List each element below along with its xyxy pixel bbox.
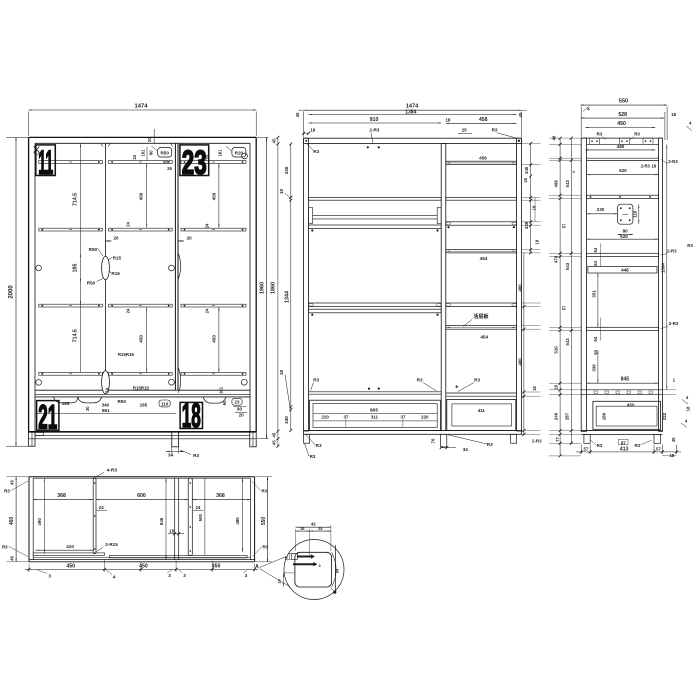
svg-text:24: 24: [204, 308, 209, 313]
svg-text:34: 34: [168, 453, 174, 458]
svg-text:865: 865: [370, 407, 378, 413]
svg-text:714.5: 714.5: [73, 193, 79, 206]
svg-text:161: 161: [140, 149, 145, 157]
svg-text:520: 520: [619, 168, 627, 173]
svg-text:845: 845: [621, 377, 630, 383]
svg-text:480: 480: [518, 284, 523, 292]
svg-text:A: A: [255, 564, 259, 570]
svg-text:24: 24: [104, 387, 109, 392]
svg-text:46: 46: [551, 135, 556, 140]
svg-text:76: 76: [431, 438, 436, 443]
svg-text:24: 24: [204, 223, 209, 228]
svg-text:110: 110: [161, 401, 169, 406]
svg-text:480: 480: [617, 144, 625, 149]
svg-text:25: 25: [462, 128, 467, 133]
svg-text:37: 37: [400, 414, 405, 419]
svg-text:340: 340: [284, 416, 289, 424]
svg-text:600: 600: [137, 493, 146, 499]
svg-text:2-R3: 2-R3: [668, 159, 678, 164]
svg-text:24: 24: [126, 308, 131, 313]
svg-text:3: 3: [245, 573, 248, 578]
svg-text:4: 4: [113, 575, 116, 580]
svg-text:351: 351: [591, 290, 596, 298]
svg-text:18: 18: [531, 205, 536, 210]
svg-text:2-R15: 2-R15: [105, 542, 118, 547]
svg-text:60: 60: [336, 569, 340, 573]
svg-text:23: 23: [235, 400, 240, 405]
svg-text:336: 336: [591, 364, 596, 372]
svg-text:2-R3: 2-R3: [369, 127, 379, 132]
svg-text:450: 450: [617, 121, 626, 127]
svg-text:479: 479: [554, 255, 559, 263]
svg-text:R3: R3: [687, 243, 693, 248]
svg-text:2-R3: 2-R3: [669, 321, 679, 326]
svg-text:45: 45: [295, 112, 300, 117]
svg-text:340: 340: [524, 166, 529, 174]
svg-text:18: 18: [277, 579, 282, 584]
svg-text:90: 90: [237, 407, 242, 412]
svg-text:368: 368: [57, 493, 66, 499]
svg-text:26: 26: [167, 166, 172, 171]
svg-text:180: 180: [601, 412, 606, 420]
svg-text:R3: R3: [4, 489, 10, 494]
svg-text:60: 60: [148, 150, 153, 155]
svg-text:448: 448: [621, 267, 629, 272]
svg-text:165: 165: [140, 403, 148, 408]
svg-text:1474: 1474: [135, 104, 149, 110]
svg-text:543: 543: [565, 262, 570, 270]
svg-text:311: 311: [371, 414, 379, 419]
svg-text:64: 64: [593, 349, 598, 354]
svg-text:543: 543: [565, 338, 570, 346]
svg-text:18: 18: [669, 453, 674, 458]
svg-text:64: 64: [593, 336, 598, 341]
svg-text:18: 18: [182, 397, 201, 435]
svg-text:R3: R3: [492, 127, 498, 132]
svg-text:R15: R15: [111, 271, 120, 276]
svg-text:450: 450: [66, 564, 75, 570]
svg-text:240: 240: [554, 412, 559, 420]
svg-text:R3: R3: [316, 443, 322, 448]
svg-text:23: 23: [182, 144, 207, 182]
svg-text:24: 24: [205, 154, 210, 159]
svg-text:57: 57: [656, 446, 661, 451]
svg-text:1960: 1960: [260, 282, 266, 294]
svg-text:454: 454: [480, 256, 488, 261]
svg-text:37: 37: [343, 414, 348, 419]
svg-text:R3: R3: [597, 443, 603, 448]
svg-text:21: 21: [38, 399, 57, 437]
svg-text:499: 499: [554, 180, 559, 188]
svg-text:18: 18: [535, 239, 540, 244]
svg-text:R15R15: R15R15: [133, 386, 150, 391]
svg-text:24: 24: [132, 154, 137, 159]
svg-text:18: 18: [300, 526, 305, 531]
svg-text:24: 24: [318, 526, 323, 531]
svg-text:458: 458: [479, 117, 488, 123]
svg-text:45: 45: [9, 480, 14, 485]
svg-text:450: 450: [211, 192, 216, 200]
svg-text:80: 80: [623, 229, 629, 234]
svg-text:400: 400: [518, 358, 523, 366]
svg-text:2-R3: 2-R3: [641, 163, 651, 168]
svg-text:20: 20: [239, 413, 244, 418]
svg-text:45: 45: [518, 112, 523, 117]
svg-text:232: 232: [662, 412, 667, 420]
svg-text:34: 34: [463, 447, 469, 452]
svg-text:520: 520: [620, 234, 628, 239]
svg-text:550: 550: [619, 99, 628, 105]
svg-text:57: 57: [584, 446, 589, 451]
svg-text:R3: R3: [2, 544, 8, 549]
svg-text:500: 500: [198, 513, 203, 521]
svg-text:714.5: 714.5: [73, 329, 79, 342]
svg-text:510: 510: [554, 346, 559, 354]
svg-text:287: 287: [565, 412, 570, 420]
svg-text:30: 30: [85, 406, 90, 411]
svg-text:340: 340: [102, 403, 110, 408]
svg-text:45: 45: [9, 555, 14, 560]
svg-text:2-R3: 2-R3: [667, 249, 677, 254]
svg-text:R50: R50: [87, 280, 96, 285]
svg-text:45: 45: [272, 432, 277, 437]
svg-text:3: 3: [168, 573, 171, 578]
svg-text:11: 11: [38, 144, 53, 182]
svg-text:528: 528: [618, 112, 627, 118]
svg-text:18: 18: [310, 127, 315, 132]
svg-text:45: 45: [671, 437, 676, 442]
svg-text:20: 20: [187, 235, 193, 240]
svg-text:18: 18: [279, 370, 284, 375]
svg-text:77: 77: [555, 437, 560, 442]
svg-text:活层板: 活层板: [473, 313, 489, 320]
svg-text:R3: R3: [474, 377, 480, 382]
svg-text:R3: R3: [313, 377, 319, 382]
svg-text:2000: 2000: [8, 285, 14, 299]
svg-text:R3: R3: [417, 377, 423, 382]
svg-text:90: 90: [163, 160, 168, 165]
svg-text:57: 57: [562, 305, 567, 310]
svg-text:450: 450: [211, 335, 216, 343]
svg-text:45: 45: [272, 138, 277, 143]
svg-text:24: 24: [99, 505, 104, 510]
svg-text:450: 450: [139, 564, 148, 570]
svg-text:413: 413: [620, 447, 629, 453]
svg-text:910: 910: [370, 117, 379, 123]
svg-text:R15R15: R15R15: [118, 352, 135, 357]
svg-text:368: 368: [216, 493, 225, 499]
svg-text:24: 24: [126, 221, 131, 226]
svg-text:15: 15: [284, 556, 288, 560]
svg-text:1860: 1860: [271, 282, 277, 294]
svg-text:R50: R50: [160, 151, 169, 156]
svg-text:161: 161: [217, 149, 222, 157]
svg-text:18: 18: [445, 117, 450, 122]
svg-text:550: 550: [261, 517, 267, 526]
svg-text:18: 18: [523, 178, 528, 183]
svg-text:3: 3: [48, 574, 51, 579]
svg-text:490: 490: [37, 518, 42, 526]
svg-text:543: 543: [565, 180, 570, 188]
svg-text:411: 411: [478, 408, 486, 413]
svg-text:18: 18: [651, 163, 656, 168]
svg-text:220: 220: [421, 414, 429, 419]
svg-text:R3: R3: [634, 443, 640, 448]
svg-text:450: 450: [212, 564, 221, 570]
svg-text:R3: R3: [262, 544, 268, 549]
svg-text:R3: R3: [261, 489, 267, 494]
svg-text:18: 18: [279, 189, 284, 194]
svg-text:450: 450: [139, 335, 144, 343]
svg-text:R3: R3: [487, 442, 493, 447]
svg-text:42: 42: [311, 521, 316, 526]
svg-text:18: 18: [671, 112, 676, 117]
svg-text:R50: R50: [89, 247, 98, 252]
svg-text:161: 161: [219, 386, 224, 394]
svg-text:410: 410: [66, 544, 74, 549]
svg-text:2-R3: 2-R3: [532, 439, 542, 444]
svg-text:R3: R3: [597, 132, 603, 137]
svg-text:R3: R3: [193, 453, 199, 458]
svg-text:846: 846: [159, 517, 164, 525]
svg-text:861: 861: [102, 408, 110, 413]
svg-text:110: 110: [632, 210, 637, 218]
svg-text:64: 64: [593, 247, 598, 252]
svg-text:R50: R50: [117, 399, 126, 404]
svg-text:45: 45: [272, 440, 277, 445]
svg-text:450: 450: [627, 403, 635, 408]
svg-text:87: 87: [621, 440, 626, 445]
svg-text:454: 454: [480, 334, 488, 339]
svg-text:R3: R3: [310, 454, 316, 459]
svg-text:R15: R15: [113, 256, 122, 261]
svg-text:165: 165: [62, 401, 70, 406]
svg-text:220: 220: [322, 414, 330, 419]
svg-text:R3: R3: [313, 149, 319, 154]
svg-text:1394: 1394: [660, 263, 665, 273]
svg-text:20: 20: [147, 137, 152, 142]
svg-text:60: 60: [222, 400, 227, 405]
svg-text:1344: 1344: [284, 291, 290, 303]
svg-text:460: 460: [9, 517, 15, 526]
svg-text:18: 18: [554, 384, 559, 389]
svg-text:480: 480: [235, 517, 240, 525]
svg-text:18: 18: [532, 386, 537, 391]
svg-text:20: 20: [113, 235, 119, 240]
svg-text:450: 450: [139, 192, 144, 200]
svg-text:64: 64: [593, 260, 598, 265]
svg-text:18: 18: [169, 529, 174, 534]
svg-text:R20: R20: [235, 151, 244, 156]
svg-text:4-R3: 4-R3: [107, 467, 118, 473]
svg-text:57: 57: [562, 223, 567, 228]
svg-text:230: 230: [597, 207, 605, 212]
svg-text:340: 340: [284, 166, 289, 174]
svg-text:456: 456: [479, 156, 487, 161]
svg-text:18: 18: [686, 406, 691, 411]
svg-text:185: 185: [73, 264, 79, 273]
svg-text:3: 3: [183, 573, 186, 578]
svg-text:R3: R3: [634, 132, 640, 137]
svg-text:1384: 1384: [405, 110, 416, 116]
svg-text:24: 24: [196, 505, 201, 510]
